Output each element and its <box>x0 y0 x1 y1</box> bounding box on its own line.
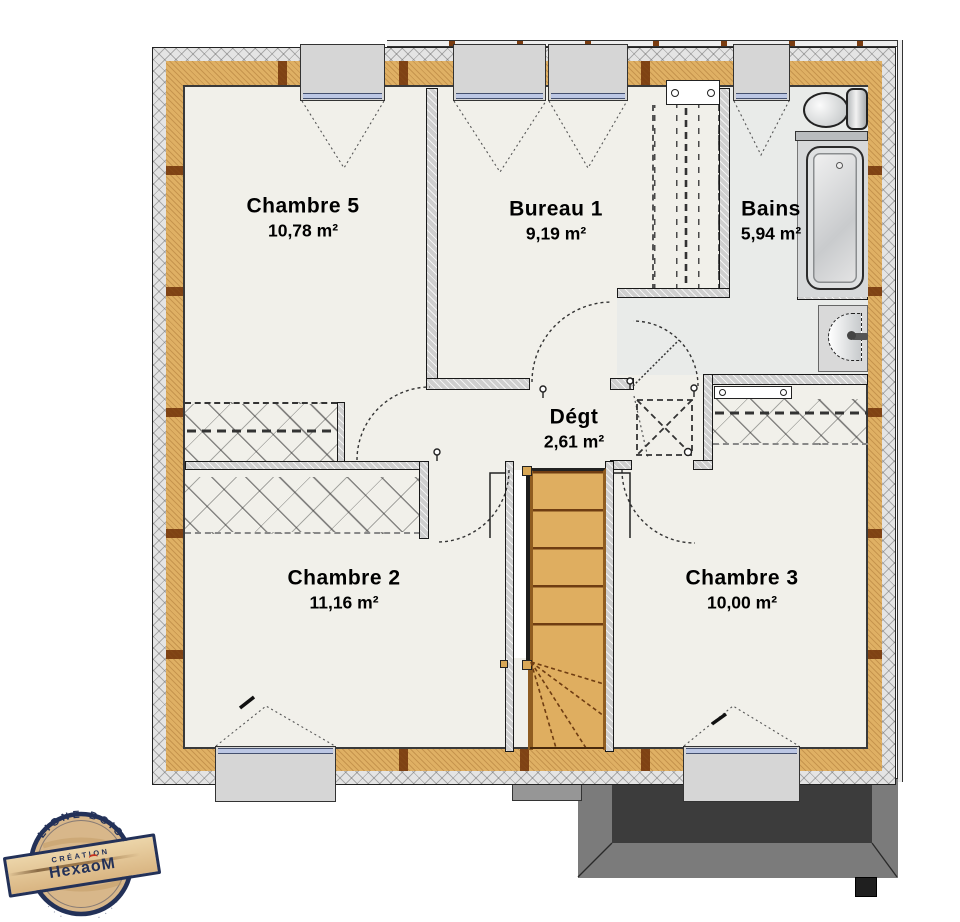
staircase <box>528 468 606 652</box>
lower-roof-tab <box>512 783 582 801</box>
room-name: Chambre 3 <box>685 566 798 592</box>
room-area: 5,94 m² <box>741 223 801 246</box>
toilet-tank <box>846 88 868 130</box>
room-name: Chambre 2 <box>287 566 400 592</box>
stair-newel-post <box>522 466 532 476</box>
bathroom-floor-entry <box>617 297 732 375</box>
wall-chambre2-degt <box>419 461 429 539</box>
room-area: 11,16 m² <box>287 592 400 615</box>
room-label-bains: Bains 5,94 m² <box>741 197 801 246</box>
radiator-valve-icon <box>780 389 787 396</box>
stair-handrail-bracket <box>500 660 508 668</box>
window-glazing <box>303 93 382 99</box>
stair-railing <box>526 468 530 666</box>
room-name: Dégt <box>544 405 604 431</box>
radiator <box>714 386 792 399</box>
window-bureau1-east <box>548 44 628 101</box>
room-label-chambre2: Chambre 2 11,16 m² <box>287 566 400 615</box>
room-area: 10,78 m² <box>246 220 359 243</box>
room-label-chambre5: Chambre 5 10,78 m² <box>246 194 359 243</box>
sloped-ceiling-zone-chambre3 <box>713 399 868 445</box>
room-area: 10,00 m² <box>685 592 798 615</box>
radiator-valve-icon <box>719 389 726 396</box>
sloped-ceiling-zone-chambre2 <box>185 477 420 534</box>
wall-chambre5-chambre2 <box>185 461 428 470</box>
floor-plan-canvas: Chambre 5 10,78 m² Bureau 1 9,19 m² Bain… <box>0 0 960 922</box>
room-label-bureau1: Bureau 1 9,19 m² <box>509 197 603 246</box>
wall-chambre3-north <box>705 374 868 385</box>
window-glazing <box>218 748 333 754</box>
sloped-ceiling-zone-chambre5 <box>185 402 337 462</box>
bathroom-shelf <box>795 131 868 141</box>
staircase-winders <box>528 652 606 750</box>
room-name: Bains <box>741 197 801 223</box>
wall-stub-chambre3-door-east <box>693 460 713 470</box>
radiator <box>666 80 720 105</box>
window-glazing <box>551 93 625 99</box>
wall-stairwell-east <box>605 461 614 752</box>
radiator-valve-icon <box>671 89 679 97</box>
room-name: Chambre 5 <box>246 194 359 220</box>
logo-brand-suffix: M <box>100 855 117 874</box>
bathtub-drain <box>836 162 843 169</box>
radiator-valve-icon <box>707 89 715 97</box>
roof-eave-line-right <box>897 40 903 782</box>
wall-stub-bains-door <box>610 378 634 390</box>
gutter-downspout <box>855 877 877 897</box>
window-glazing <box>686 748 797 754</box>
washbasin-tap-knob <box>847 331 856 340</box>
room-area: 9,19 m² <box>509 223 603 246</box>
wall-bureau1-degt <box>426 378 530 390</box>
room-name: Bureau 1 <box>509 197 603 223</box>
toilet-icon <box>803 92 849 128</box>
logo-stamp: LIGNE BOIS · · · · · · · · · · · · CRÉAT… <box>8 806 150 918</box>
window-chambre2 <box>215 746 336 802</box>
room-label-chambre3: Chambre 3 10,00 m² <box>685 566 798 615</box>
wall-bains-south-west <box>617 288 730 298</box>
technical-duct-strip <box>652 105 720 290</box>
stair-newel-post <box>522 660 532 670</box>
bathtub-icon <box>806 146 864 290</box>
window-bureau1-west <box>453 44 546 101</box>
window-bains <box>733 44 790 101</box>
wall-stub-slope-chambre5 <box>337 402 345 462</box>
wall-bains-west <box>719 88 730 297</box>
room-label-degt: Dégt 2,61 m² <box>544 405 604 454</box>
wall-chambre5-bureau1 <box>426 88 438 380</box>
room-area: 2,61 m² <box>544 431 604 454</box>
window-glazing <box>456 93 543 99</box>
window-chambre5 <box>300 44 385 101</box>
wall-degt-chambre3 <box>703 374 713 470</box>
window-chambre3 <box>683 746 800 802</box>
window-glazing <box>736 93 787 99</box>
wall-stairwell-west <box>505 461 514 752</box>
